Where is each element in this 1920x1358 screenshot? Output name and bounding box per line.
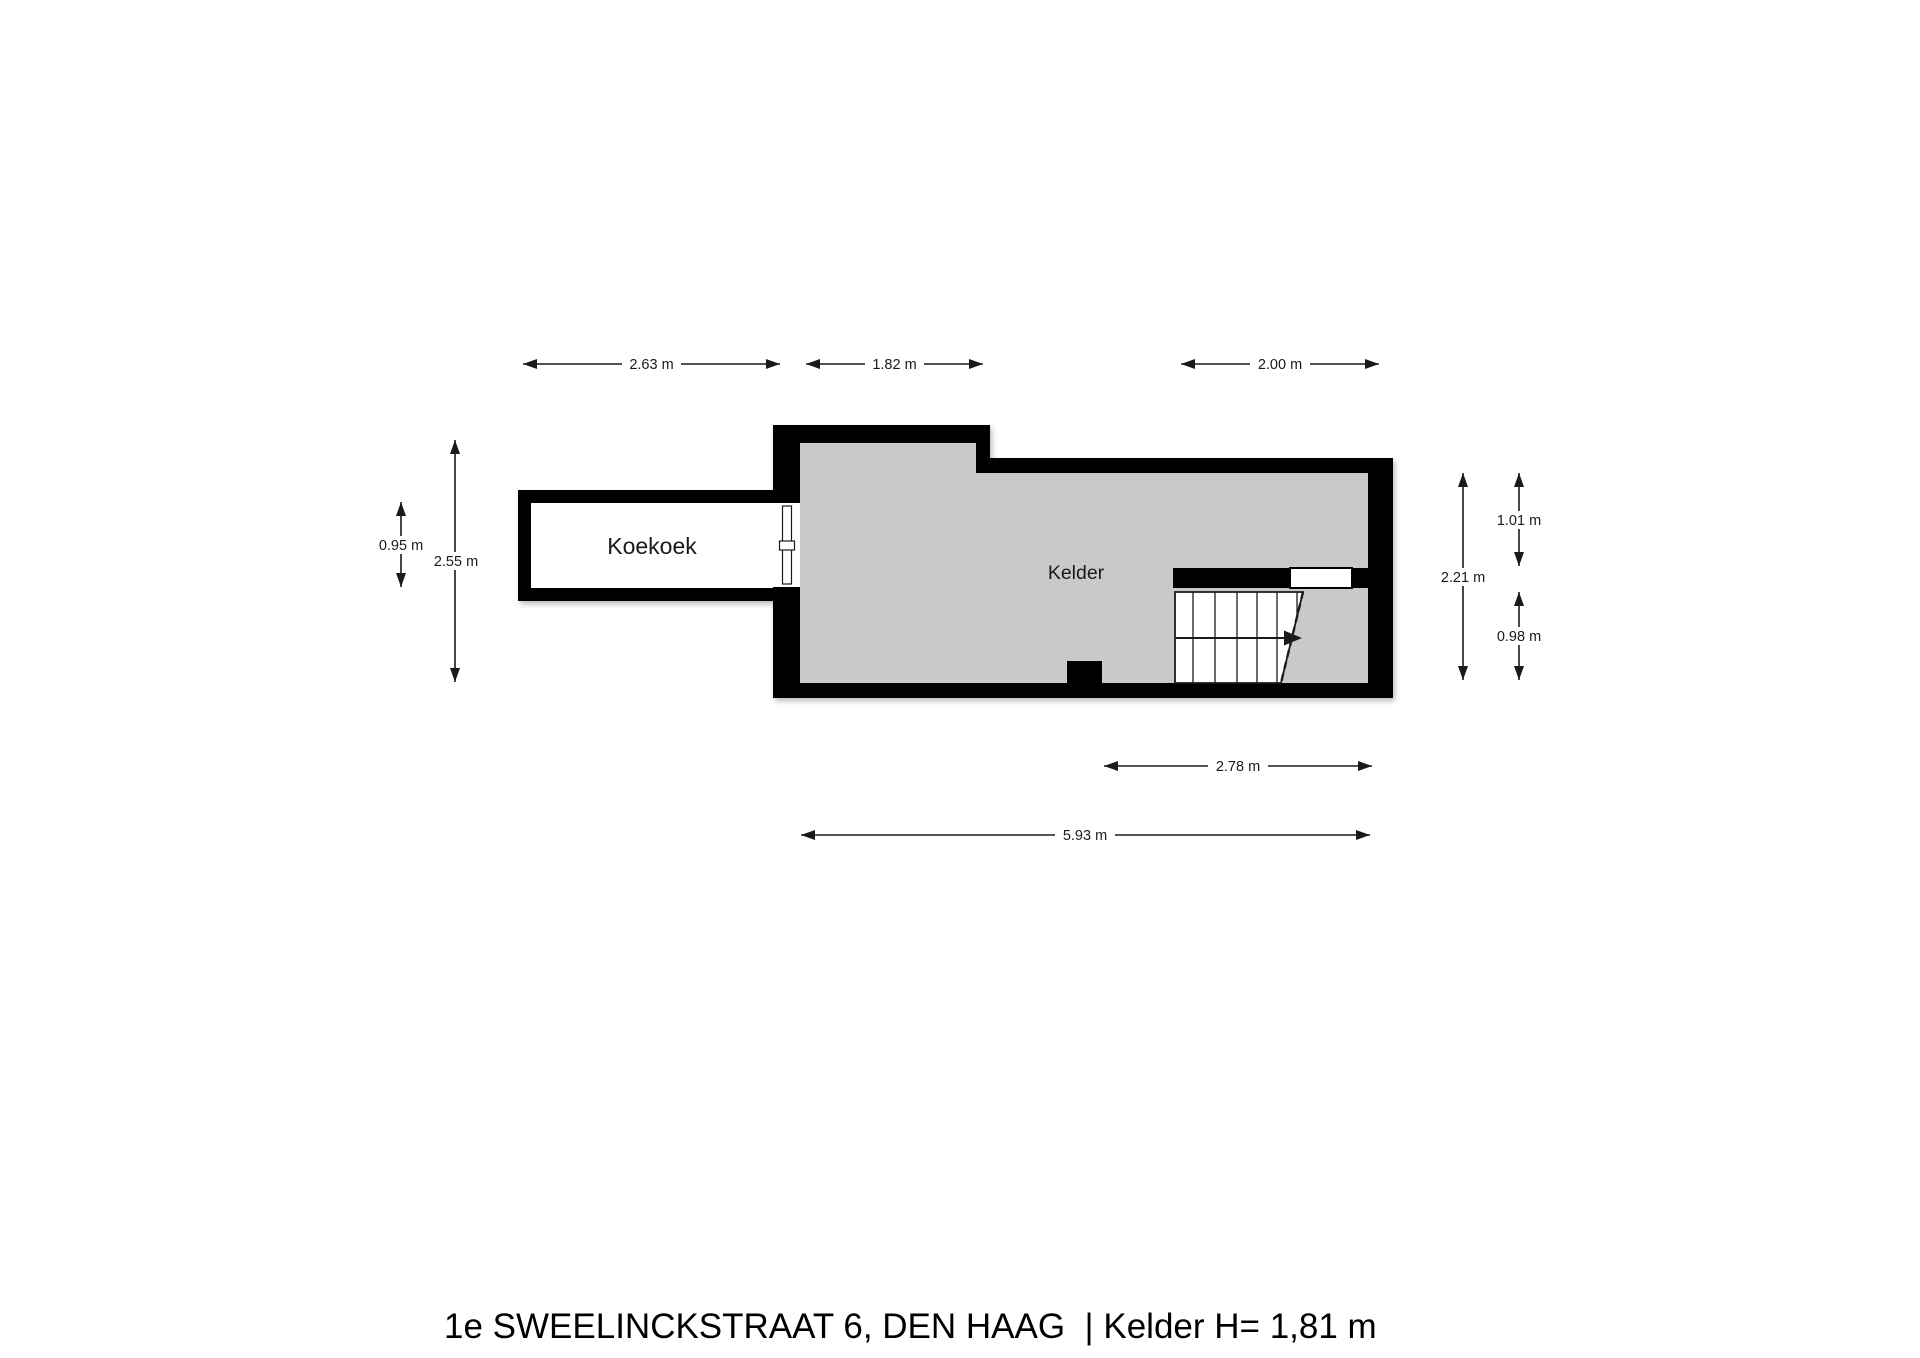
room-label-kelder: Kelder	[1048, 562, 1105, 584]
stair-interior-wall	[1173, 568, 1290, 588]
dimension-top-182: 1.82 m	[806, 355, 983, 373]
svg-text:2.00 m: 2.00 m	[1258, 357, 1302, 373]
dimension-left-095: 0.95 m	[371, 502, 431, 587]
svg-text:2.63 m: 2.63 m	[629, 357, 673, 373]
dimension-top-263: 2.63 m	[523, 355, 780, 373]
bottom-wall-stub	[1067, 661, 1102, 683]
stair-door-opening	[1290, 568, 1352, 588]
svg-text:1.82 m: 1.82 m	[872, 357, 916, 373]
stair-wall-filler	[1352, 568, 1368, 588]
dimension-bottom-278: 2.78 m	[1104, 757, 1372, 775]
staircase	[1175, 592, 1303, 683]
svg-text:2.21 m: 2.21 m	[1441, 570, 1485, 586]
svg-text:0.95 m: 0.95 m	[379, 538, 423, 554]
dimension-top-200: 2.00 m	[1181, 355, 1379, 373]
room-label-koekoek: Koekoek	[607, 533, 697, 559]
window-opening	[772, 503, 800, 587]
floorplan-title: 1e SWEELINCKSTRAAT 6, DEN HAAG | Kelder …	[444, 1308, 1377, 1347]
dimension-right-221: 2.21 m	[1433, 473, 1493, 680]
svg-text:1.01 m: 1.01 m	[1497, 513, 1541, 529]
floorplan-page: Koekoek Kelder 2.63 m 1.82 m 2.00 m 2.78…	[0, 0, 1920, 1358]
dimension-right-101: 1.01 m	[1489, 473, 1549, 566]
svg-text:5.93 m: 5.93 m	[1063, 828, 1107, 844]
svg-text:2.78 m: 2.78 m	[1216, 759, 1260, 775]
floorplan-drawing: Koekoek Kelder 2.63 m 1.82 m 2.00 m 2.78…	[0, 0, 1920, 1358]
dimension-right-098: 0.98 m	[1489, 592, 1549, 680]
svg-text:0.98 m: 0.98 m	[1497, 629, 1541, 645]
window-mullion-icon	[780, 541, 795, 550]
svg-text:2.55 m: 2.55 m	[434, 554, 478, 570]
dimension-bottom-593: 5.93 m	[801, 826, 1370, 844]
dimension-left-255: 2.55 m	[426, 440, 486, 682]
